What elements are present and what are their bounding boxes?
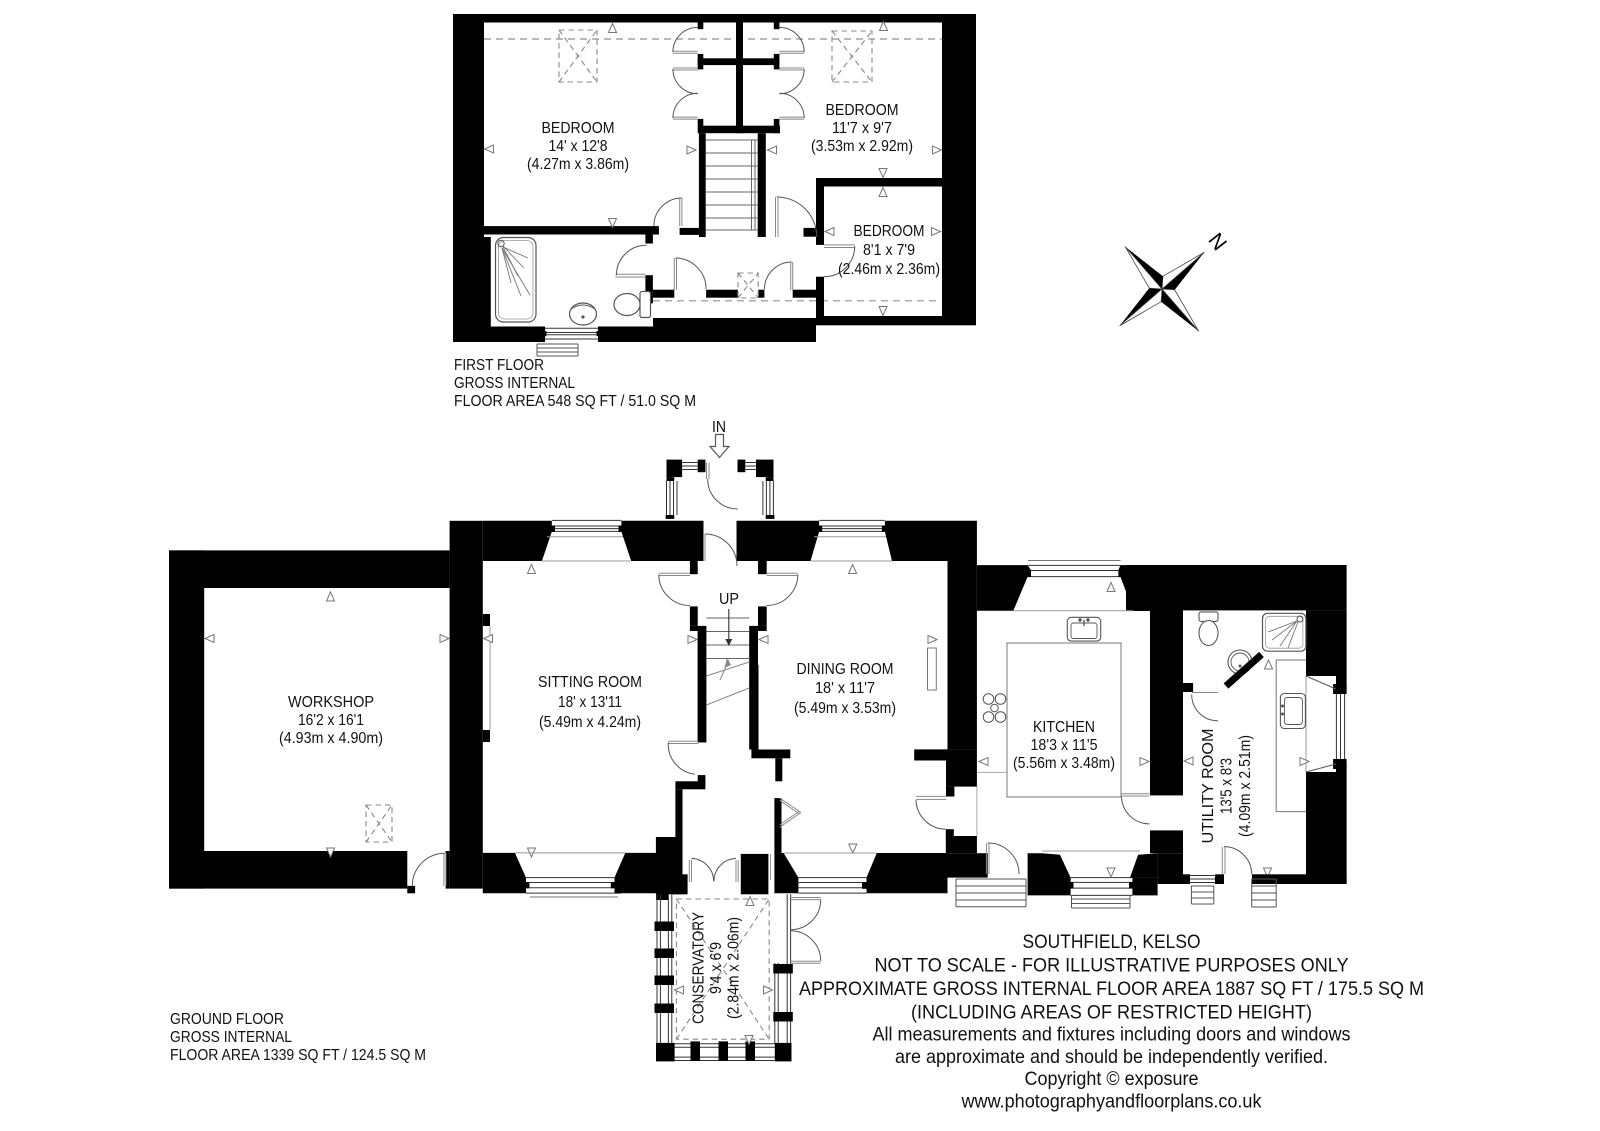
svg-text:18' x 11'7: 18' x 11'7 <box>815 680 875 697</box>
svg-text:(5.49m x 4.24m): (5.49m x 4.24m) <box>539 714 641 731</box>
svg-text:WORKSHOP: WORKSHOP <box>288 694 374 711</box>
svg-text:SITTING ROOM: SITTING ROOM <box>538 674 642 691</box>
svg-text:APPROXIMATE GROSS INTERNAL FLO: APPROXIMATE GROSS INTERNAL FLOOR AREA 18… <box>799 978 1424 1000</box>
svg-text:KITCHEN: KITCHEN <box>1033 719 1095 736</box>
svg-text:(2.46m x 2.36m): (2.46m x 2.36m) <box>838 261 940 278</box>
svg-text:13'5 x 8'3: 13'5 x 8'3 <box>1219 758 1236 814</box>
svg-text:UP: UP <box>719 591 739 608</box>
svg-text:BEDROOM: BEDROOM <box>542 120 615 137</box>
svg-text:GROSS INTERNAL: GROSS INTERNAL <box>170 1029 292 1046</box>
svg-text:16'2 x 16'1: 16'2 x 16'1 <box>298 712 364 729</box>
svg-text:(4.27m x 3.86m): (4.27m x 3.86m) <box>527 156 629 173</box>
svg-text:SOUTHFIELD, KELSO: SOUTHFIELD, KELSO <box>1023 931 1201 953</box>
svg-text:are approximate and should be: are approximate and should be independen… <box>895 1046 1328 1068</box>
svg-text:BEDROOM: BEDROOM <box>854 223 925 240</box>
svg-text:(INCLUDING AREAS OF RESTRICTED: (INCLUDING AREAS OF RESTRICTED HEIGHT) <box>911 1002 1312 1024</box>
svg-text:18' x 13'11: 18' x 13'11 <box>558 694 622 711</box>
svg-text:GROSS INTERNAL: GROSS INTERNAL <box>454 375 575 392</box>
svg-text:(3.53m x 2.92m): (3.53m x 2.92m) <box>811 138 913 155</box>
svg-text:FLOOR AREA 1339 SQ FT / 124.5: FLOOR AREA 1339 SQ FT / 124.5 SQ M <box>170 1047 426 1064</box>
svg-text:(4.09m x 2.51m): (4.09m x 2.51m) <box>1237 735 1254 837</box>
svg-text:18'3 x 11'5: 18'3 x 11'5 <box>1031 737 1098 754</box>
svg-text:FIRST FLOOR: FIRST FLOOR <box>454 357 544 374</box>
svg-text:DINING ROOM: DINING ROOM <box>797 661 894 678</box>
svg-text:www.photographyandfloorplans.c: www.photographyandfloorplans.co.uk <box>961 1091 1262 1113</box>
svg-text:8'1 x 7'9: 8'1 x 7'9 <box>863 242 915 259</box>
svg-text:9'4 x 6'9: 9'4 x 6'9 <box>708 942 725 994</box>
svg-text:11'7 x 9'7: 11'7 x 9'7 <box>832 120 892 137</box>
svg-text:(2.84m x 2.06m): (2.84m x 2.06m) <box>726 917 743 1019</box>
svg-text:NOT TO SCALE - FOR ILLUSTRATIV: NOT TO SCALE - FOR ILLUSTRATIVE PURPOSES… <box>875 955 1349 977</box>
svg-text:(4.93m x 4.90m): (4.93m x 4.90m) <box>279 730 383 747</box>
svg-text:Copyright © exposure: Copyright © exposure <box>1025 1068 1199 1090</box>
svg-text:All measurements and fixtures: All measurements and fixtures including … <box>873 1024 1351 1046</box>
svg-text:FLOOR AREA 548 SQ FT / 51.0 SQ: FLOOR AREA 548 SQ FT / 51.0 SQ M <box>454 393 696 410</box>
svg-text:14' x 12'8: 14' x 12'8 <box>549 138 608 155</box>
svg-text:UTILITY ROOM: UTILITY ROOM <box>1200 729 1217 844</box>
svg-text:IN: IN <box>712 419 726 436</box>
svg-text:BEDROOM: BEDROOM <box>826 102 899 119</box>
svg-text:GROUND FLOOR: GROUND FLOOR <box>170 1011 284 1028</box>
svg-text:(5.49m x 3.53m): (5.49m x 3.53m) <box>794 700 896 717</box>
svg-text:(5.56m x 3.48m): (5.56m x 3.48m) <box>1013 755 1115 772</box>
svg-text:CONSERVATORY: CONSERVATORY <box>691 912 708 1024</box>
